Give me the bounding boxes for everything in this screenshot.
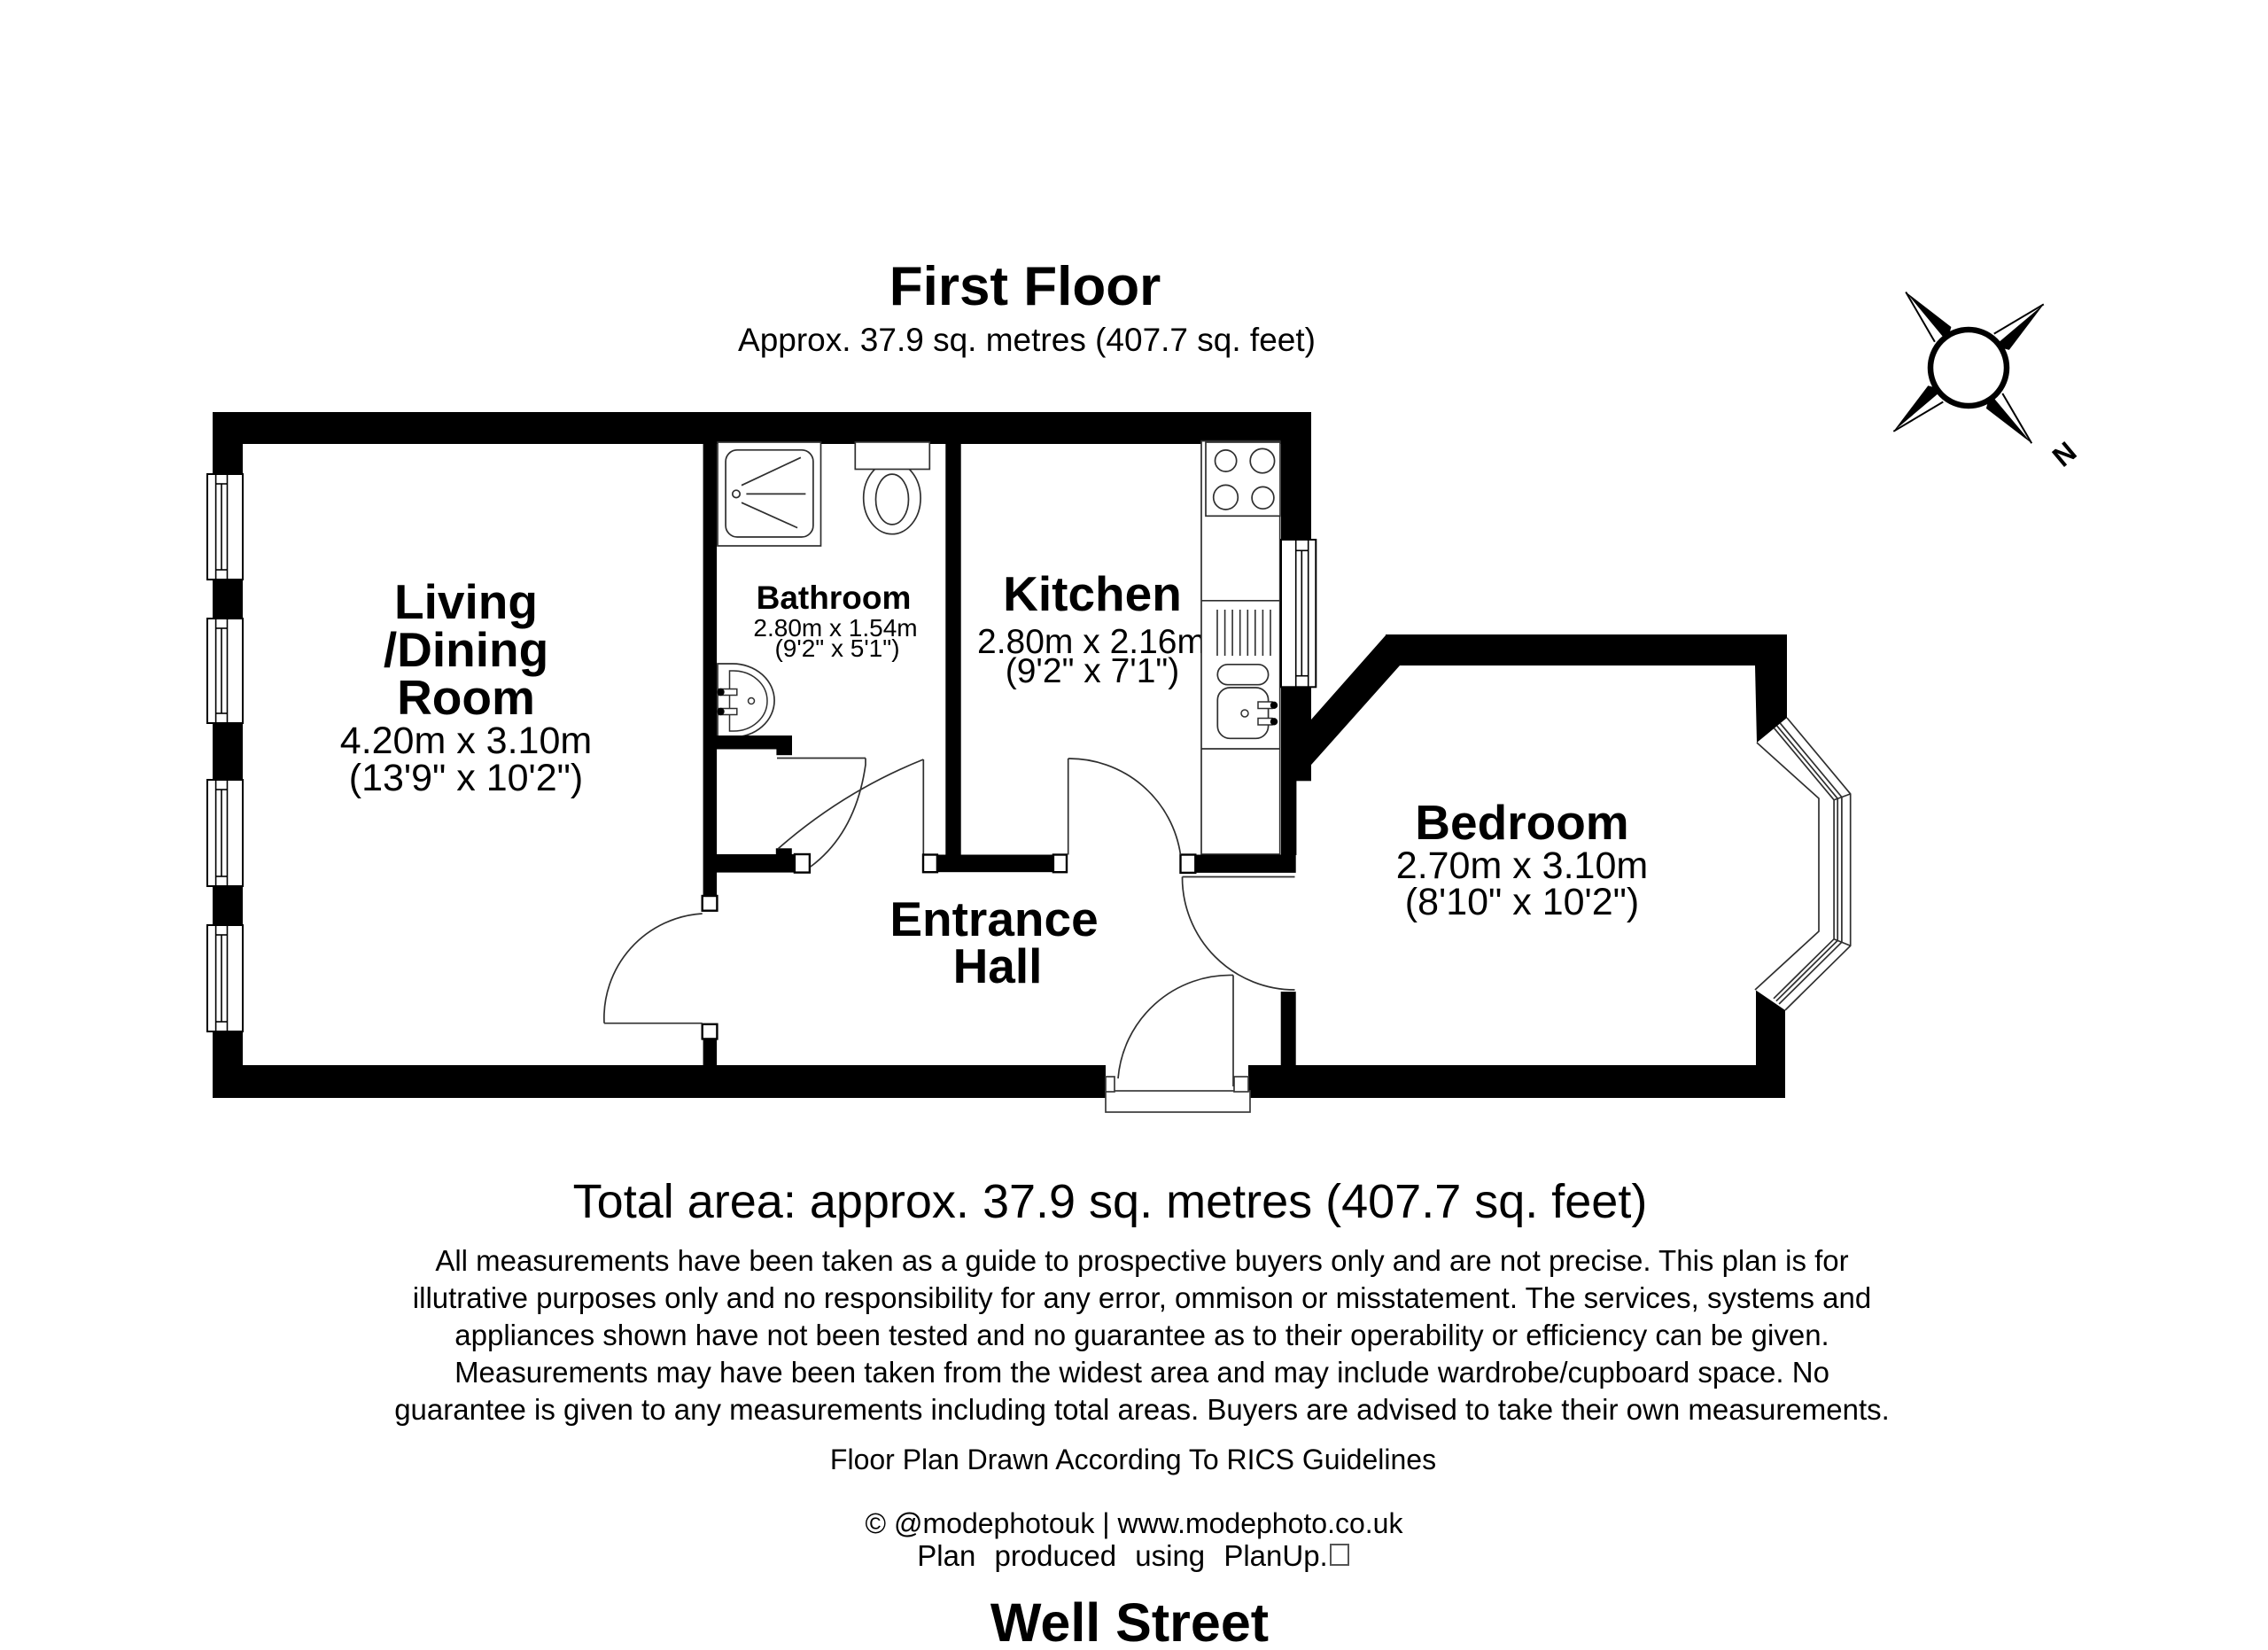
svg-text:Hall: Hall [953, 938, 1043, 993]
svg-text:guarantee is given to any meas: guarantee is given to any measurements i… [394, 1393, 1890, 1426]
svg-text:(13'9" x 10'2"): (13'9" x 10'2") [349, 757, 583, 799]
svg-text:First Floor: First Floor [889, 256, 1161, 317]
svg-text:All measurements have been tak: All measurements have been taken as a gu… [435, 1244, 1848, 1277]
svg-text:© @modephotouk | www.modephoto: © @modephotouk | www.modephoto.co.uk [866, 1507, 1404, 1539]
svg-text:illutrative purposes only and: illutrative purposes only and no respons… [413, 1281, 1871, 1314]
svg-text:Room: Room [397, 670, 535, 725]
svg-text:(9'2" x 5'1"): (9'2" x 5'1") [774, 634, 899, 662]
svg-text:Floor Plan Drawn According To: Floor Plan Drawn According To RICS Guide… [830, 1444, 1436, 1475]
svg-text:(8'10" x 10'2"): (8'10" x 10'2") [1405, 881, 1639, 923]
svg-text:appliances shown have not been: appliances shown have not been tested an… [454, 1319, 1829, 1351]
svg-text:Well Street: Well Street [990, 1592, 1269, 1650]
svg-text:4.20m x 3.10m: 4.20m x 3.10m [340, 720, 592, 762]
svg-text:Plan produced using PlanUp.: Plan produced using PlanUp. [917, 1539, 1327, 1572]
svg-text:Approx. 37.9 sq. metres (407.7: Approx. 37.9 sq. metres (407.7 sq. feet) [738, 322, 1316, 358]
svg-text:(9'2" x 7'1"): (9'2" x 7'1") [1006, 652, 1180, 690]
svg-text:Measurements may have been tak: Measurements may have been taken from th… [454, 1356, 1829, 1389]
svg-text:Living: Living [394, 574, 538, 629]
svg-text:Bedroom: Bedroom [1415, 795, 1628, 850]
svg-text:/Dining: /Dining [384, 622, 548, 677]
svg-text:Total area: approx. 37.9 sq. m: Total area: approx. 37.9 sq. metres (407… [573, 1175, 1648, 1228]
svg-text:Bathroom: Bathroom [757, 580, 912, 616]
svg-text:Kitchen: Kitchen [1003, 566, 1182, 621]
